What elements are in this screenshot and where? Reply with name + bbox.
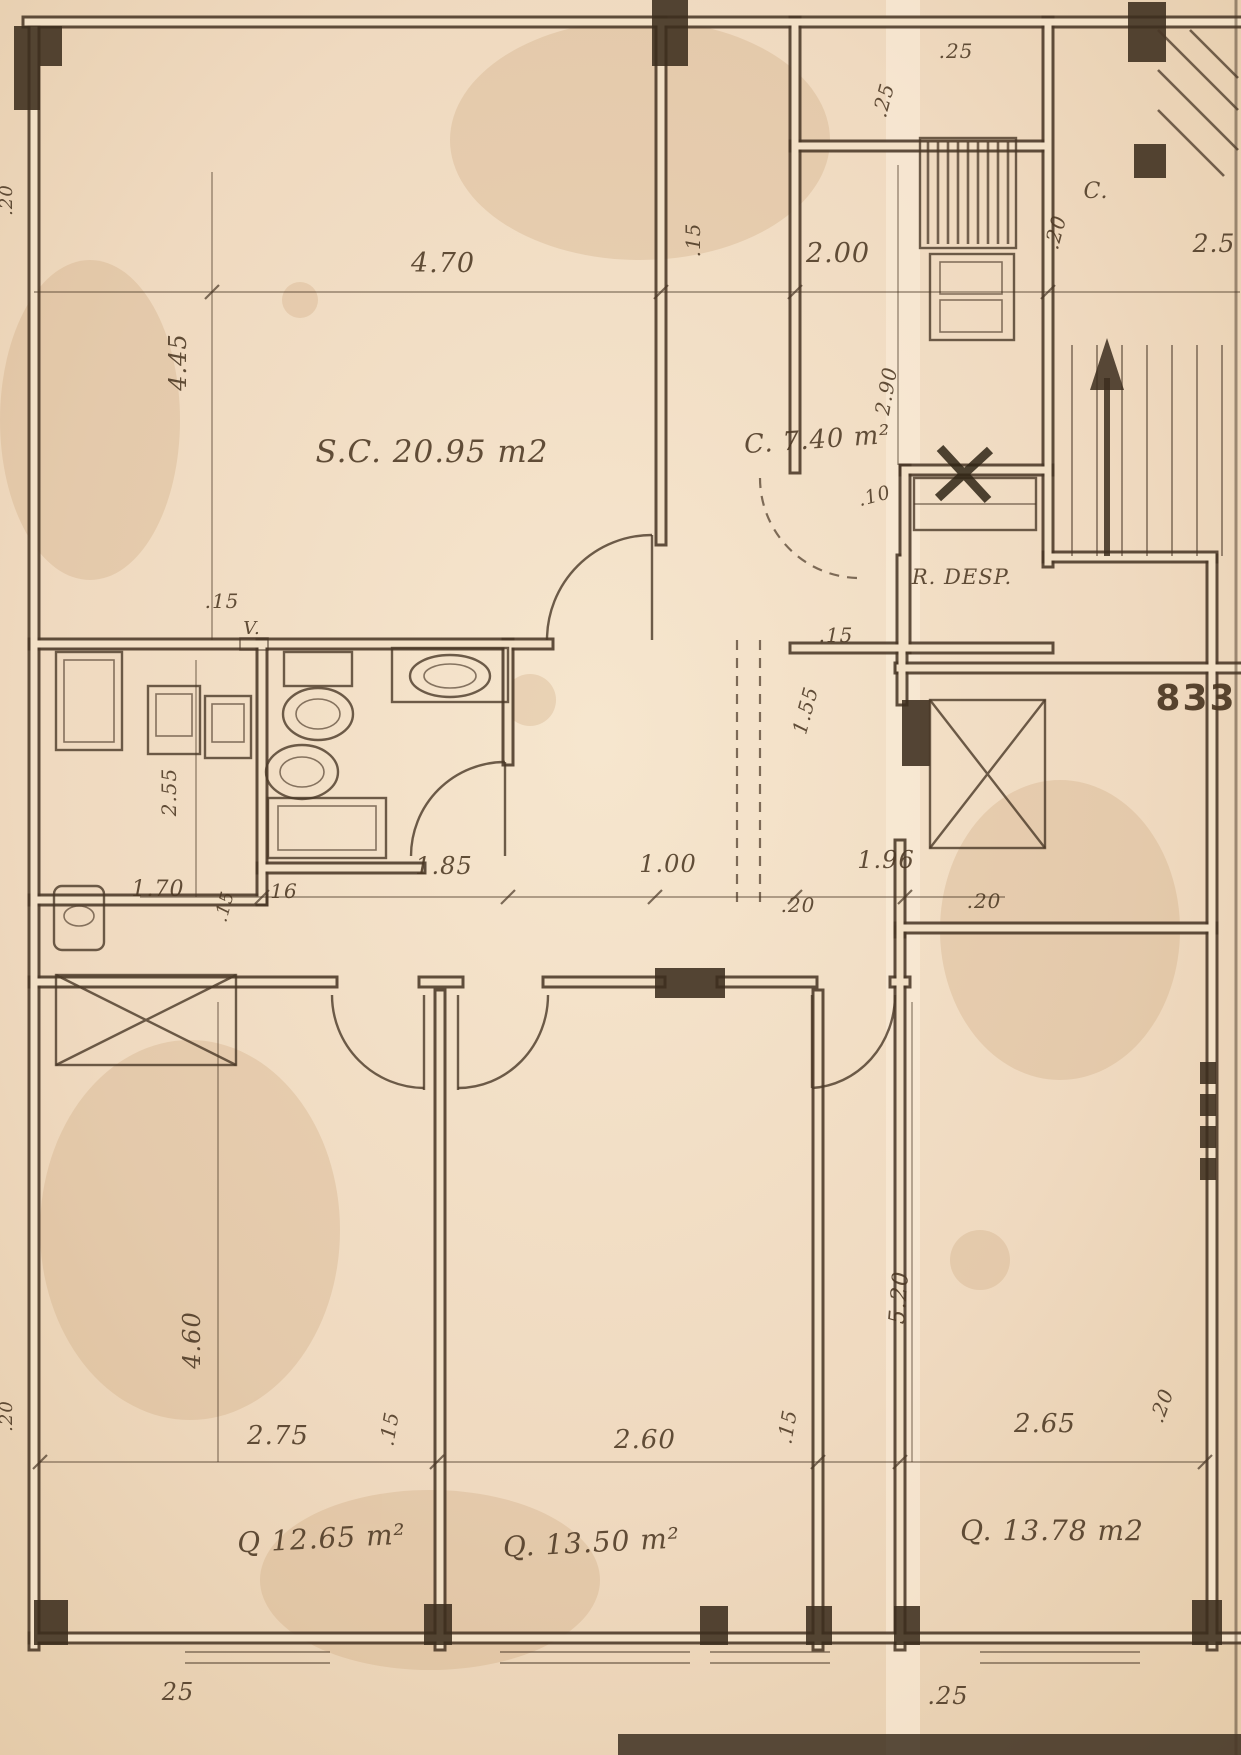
- dim-bot-25-left: 25: [161, 1678, 195, 1706]
- dim-left-445: 4.45: [164, 333, 192, 391]
- dim-bot-275: 2.75: [246, 1421, 309, 1451]
- dim-top-25: .25: [939, 39, 974, 63]
- dim-top-200: 2.00: [805, 238, 870, 269]
- dim-bot-260: 2.60: [613, 1425, 676, 1455]
- dim-mid-196: 1.96: [857, 846, 914, 874]
- dim-mid-185: 1.85: [415, 852, 472, 880]
- scan-dark-strip: [618, 1734, 1241, 1755]
- label-vent: V.: [243, 618, 261, 639]
- dim-right-520: 5.20: [885, 1270, 915, 1325]
- dim-top-right-25: 2.5: [1192, 229, 1236, 258]
- dim-left-15: .15: [205, 589, 240, 613]
- floor-plan-svg: S.C. 20.95 m2C. 7.40 m²R. DESP.Q 12.65 m…: [0, 0, 1241, 1755]
- dim-hall-15: .15: [819, 623, 854, 647]
- label-c-landing: C.: [1083, 179, 1108, 204]
- dim-mid-20a: .20: [781, 893, 816, 917]
- stamp-833: 833: [1155, 678, 1236, 719]
- dim-mid-16: 16: [270, 879, 297, 903]
- dim-edge-20-top: .20: [0, 184, 17, 216]
- dim-mid-100: 1.00: [639, 850, 696, 878]
- dim-mid-20b: .20: [967, 889, 1002, 913]
- dim-mid-170: 1.70: [132, 877, 185, 902]
- room-label-pantry: R. DESP.: [911, 565, 1012, 589]
- dim-top-15: .15: [681, 223, 705, 258]
- dim-left-460: 4.60: [178, 1311, 206, 1369]
- dim-left-255: 2.55: [157, 768, 181, 818]
- room-label-bedroom-3: Q. 13.78 m2: [960, 1514, 1144, 1547]
- dim-edge-20-bot: .20: [0, 1400, 17, 1432]
- room-label-living: S.C. 20.95 m2: [315, 434, 548, 470]
- dim-top-470: 4.70: [410, 248, 475, 279]
- dim-bot-265: 2.65: [1013, 1409, 1076, 1439]
- dim-bot-25-right: .25: [927, 1682, 968, 1710]
